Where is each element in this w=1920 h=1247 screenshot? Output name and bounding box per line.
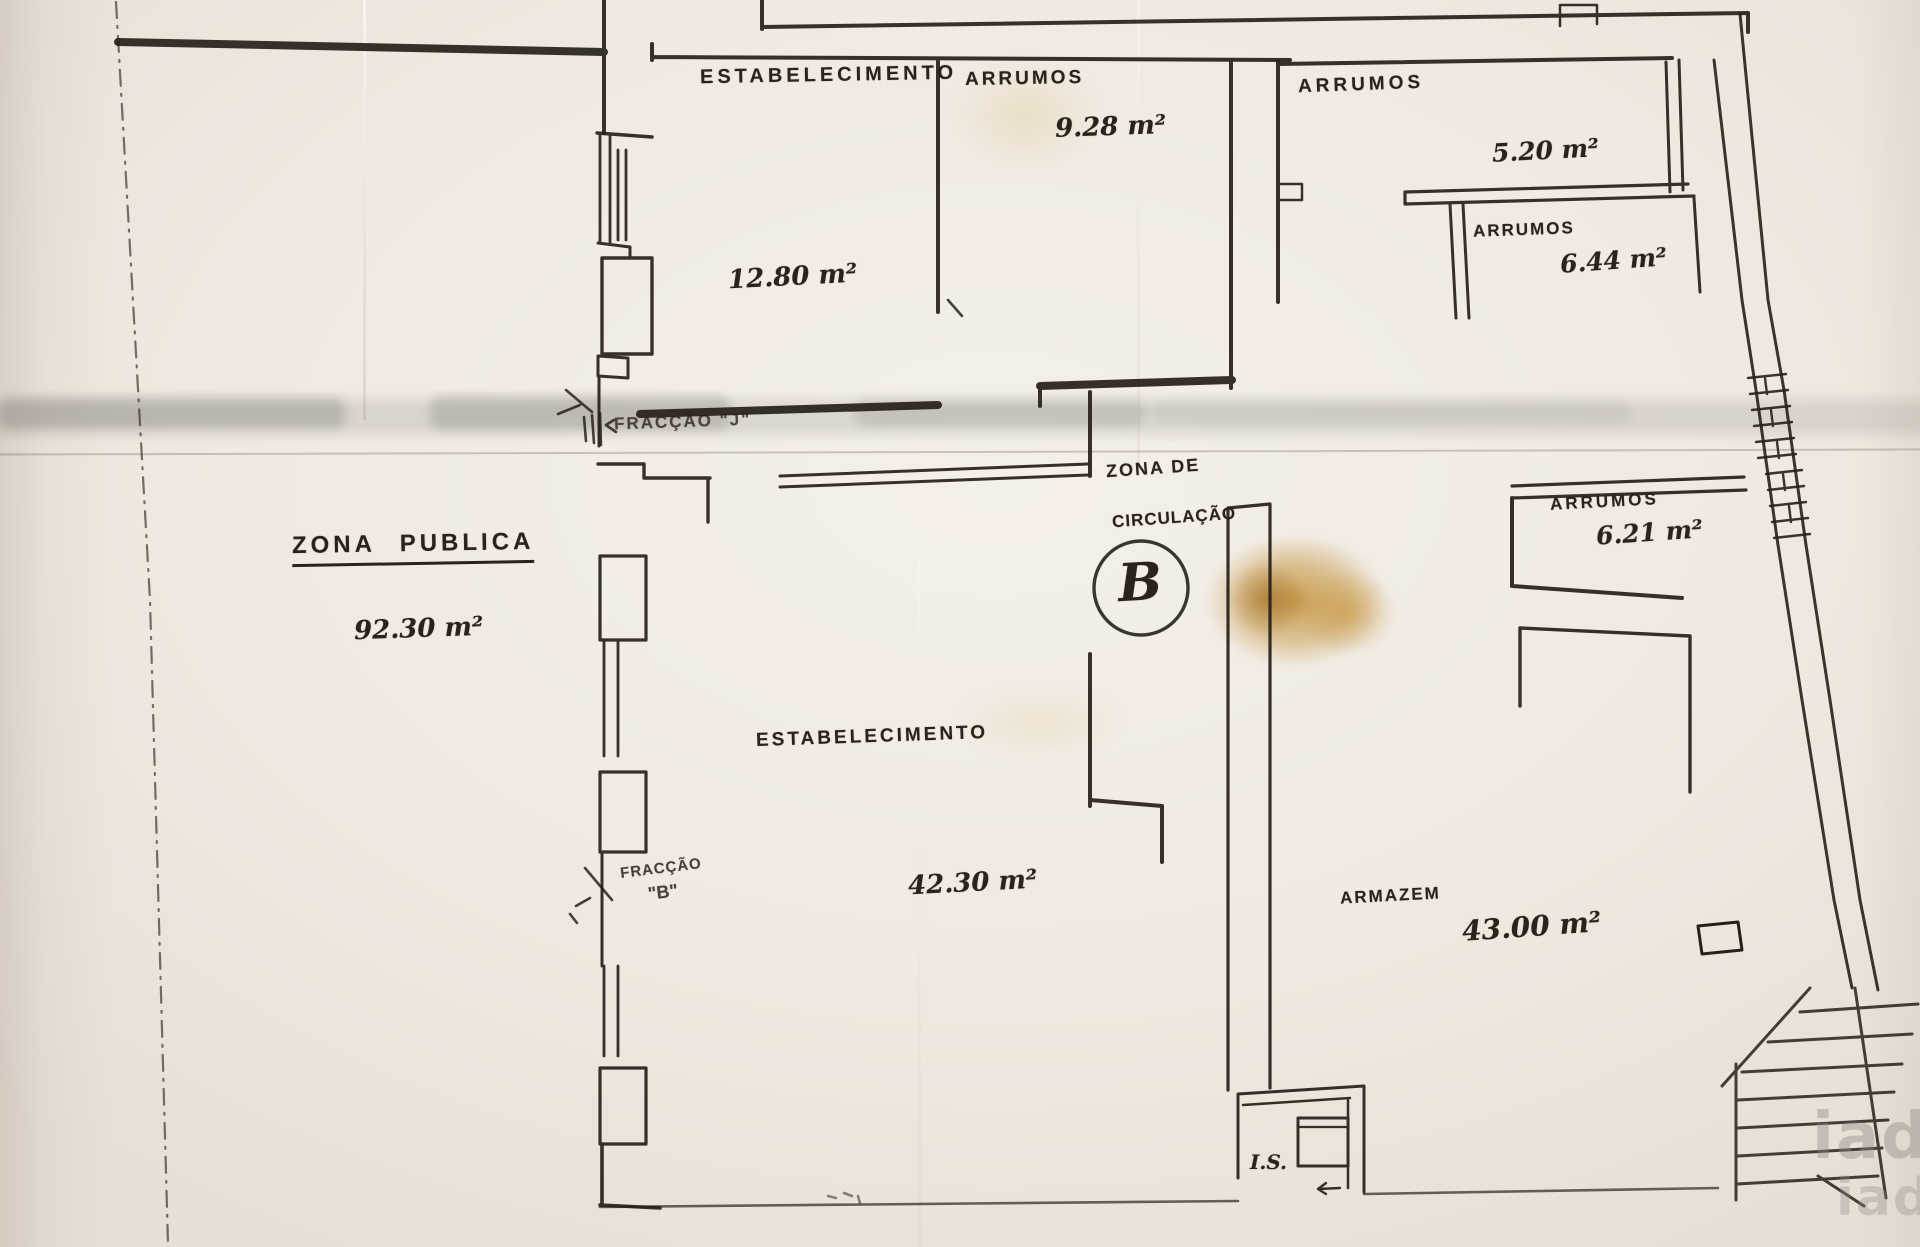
corridor-walls <box>1090 392 1270 1090</box>
interior-walls-ne-rooms <box>1278 58 1700 318</box>
property-boundary-line <box>116 2 168 1244</box>
area-value-5-20: 5.20 m² <box>1491 133 1599 168</box>
iad-watermark-echo: iad <box>1836 1168 1920 1228</box>
storefront-wall-fraccao-b <box>600 556 660 1208</box>
is-room-walls <box>1238 1086 1364 1194</box>
room-label-estabelecimento-top: ESTABELECIMENTO <box>700 62 957 89</box>
room-label-is: I.S. <box>1250 1150 1287 1174</box>
outer-walls <box>118 0 1748 1207</box>
floorplan-drawing <box>0 0 1920 1247</box>
room-label-arrumos-top: ARRUMOS <box>965 67 1085 91</box>
shop-front-wall-top <box>598 464 1088 522</box>
interior-walls-top-rooms <box>640 44 1290 414</box>
floorplan-page: ESTABELECIMENTO ARRUMOS 9.28 m² 12.80 m²… <box>0 0 1920 1247</box>
label-zona-publica: ZONA PUBLICA <box>292 528 535 567</box>
area-value-92-30: 92.30 m² <box>354 612 484 646</box>
callout-fraccao-b-line2: "B" <box>647 880 679 905</box>
room-label-arrumos-ne: ARRUMOS <box>1298 72 1425 98</box>
unit-letter-b: B <box>1116 551 1163 614</box>
area-value-9-28: 9.28 m² <box>1055 110 1167 144</box>
iad-watermark: iad <box>1812 1100 1920 1174</box>
storefront-wall-fraccao-j <box>597 133 652 446</box>
room-label-arrumos-e: ARRUMOS <box>1473 218 1575 242</box>
armazem-pillar <box>1698 922 1742 954</box>
